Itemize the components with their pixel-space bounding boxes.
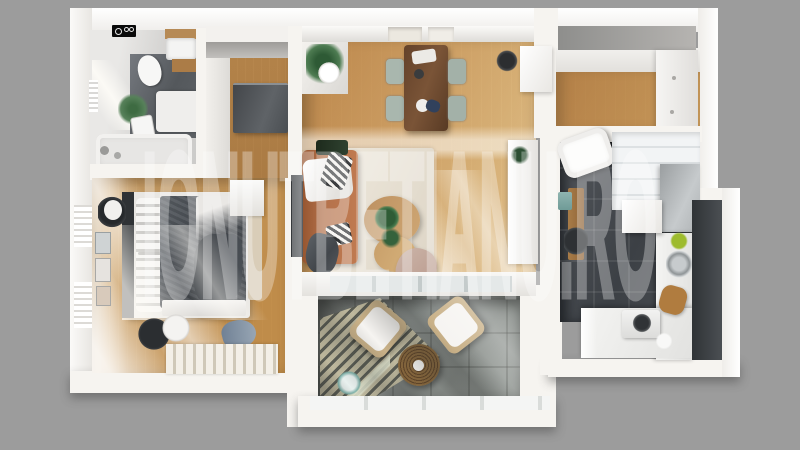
svg-text:IONUTBETIANU.RO: IONUTBETIANU.RO: [142, 111, 657, 340]
